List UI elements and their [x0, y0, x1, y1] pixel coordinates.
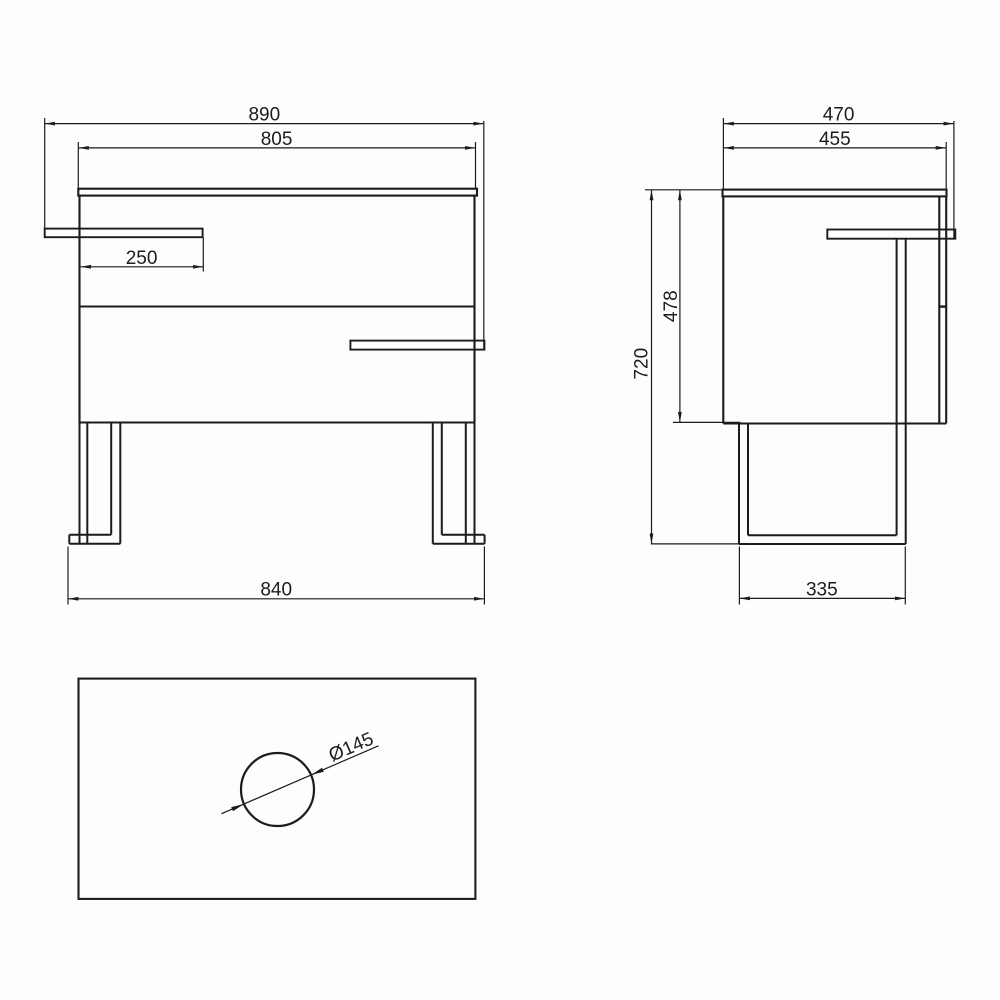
svg-text:805: 805	[261, 129, 293, 150]
svg-text:455: 455	[819, 129, 851, 150]
svg-text:335: 335	[806, 579, 838, 600]
svg-text:720: 720	[631, 348, 652, 380]
svg-text:470: 470	[823, 105, 855, 126]
svg-text:250: 250	[126, 248, 158, 269]
svg-text:478: 478	[661, 290, 682, 322]
svg-text:890: 890	[248, 105, 280, 126]
svg-text:840: 840	[260, 579, 292, 600]
